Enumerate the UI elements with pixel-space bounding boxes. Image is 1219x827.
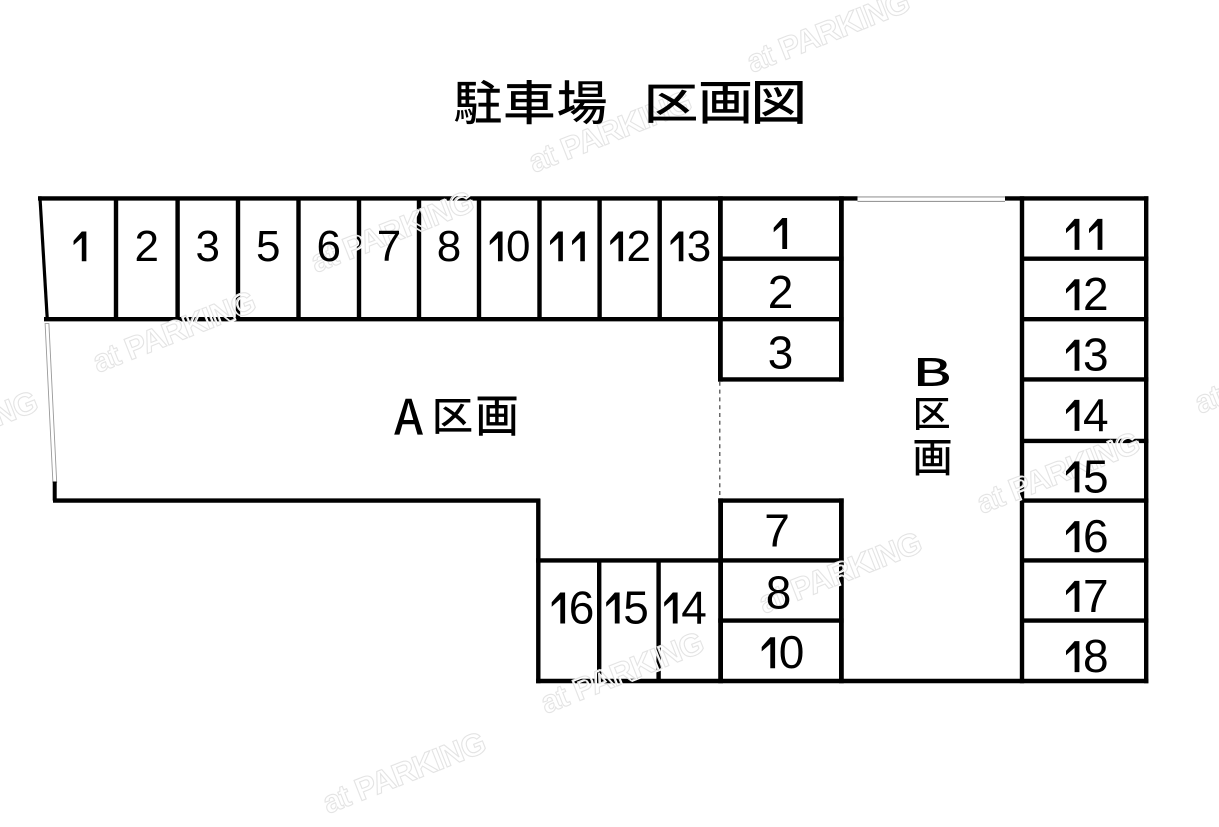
svg-text:6: 6 (1083, 510, 1109, 562)
svg-text:3: 3 (768, 326, 794, 378)
svg-text:at PARKING: at PARKING (317, 724, 490, 820)
svg-text:5: 5 (1083, 450, 1109, 502)
svg-text:2: 2 (1083, 268, 1109, 320)
svg-text:7: 7 (764, 505, 790, 557)
svg-text:2: 2 (626, 222, 650, 271)
svg-text:7: 7 (1083, 570, 1109, 622)
svg-text:4: 4 (681, 582, 707, 634)
svg-text:2: 2 (135, 222, 159, 271)
svg-text:6: 6 (317, 222, 341, 271)
svg-text:3: 3 (1083, 329, 1109, 381)
svg-text:at PARKING: at PARKING (971, 424, 1144, 520)
svg-text:at PARKING: at PARKING (741, 0, 914, 80)
svg-text:0: 0 (779, 626, 805, 678)
svg-text:3: 3 (196, 222, 220, 271)
svg-text:8: 8 (766, 566, 792, 618)
svg-text:0: 0 (506, 222, 530, 271)
svg-text:at PARKING: at PARKING (87, 283, 260, 379)
svg-text:7: 7 (377, 222, 401, 271)
svg-text:8: 8 (1083, 630, 1109, 682)
svg-text:4: 4 (1083, 389, 1109, 441)
svg-text:3: 3 (687, 222, 711, 271)
svg-text:5: 5 (623, 582, 649, 634)
svg-text:5: 5 (256, 222, 280, 271)
svg-text:2: 2 (768, 266, 794, 318)
svg-text:8: 8 (437, 222, 461, 271)
svg-text:6: 6 (569, 582, 595, 634)
svg-text:at PARKING: at PARKING (535, 624, 708, 720)
svg-text:at PARKING: at PARKING (1189, 324, 1219, 420)
